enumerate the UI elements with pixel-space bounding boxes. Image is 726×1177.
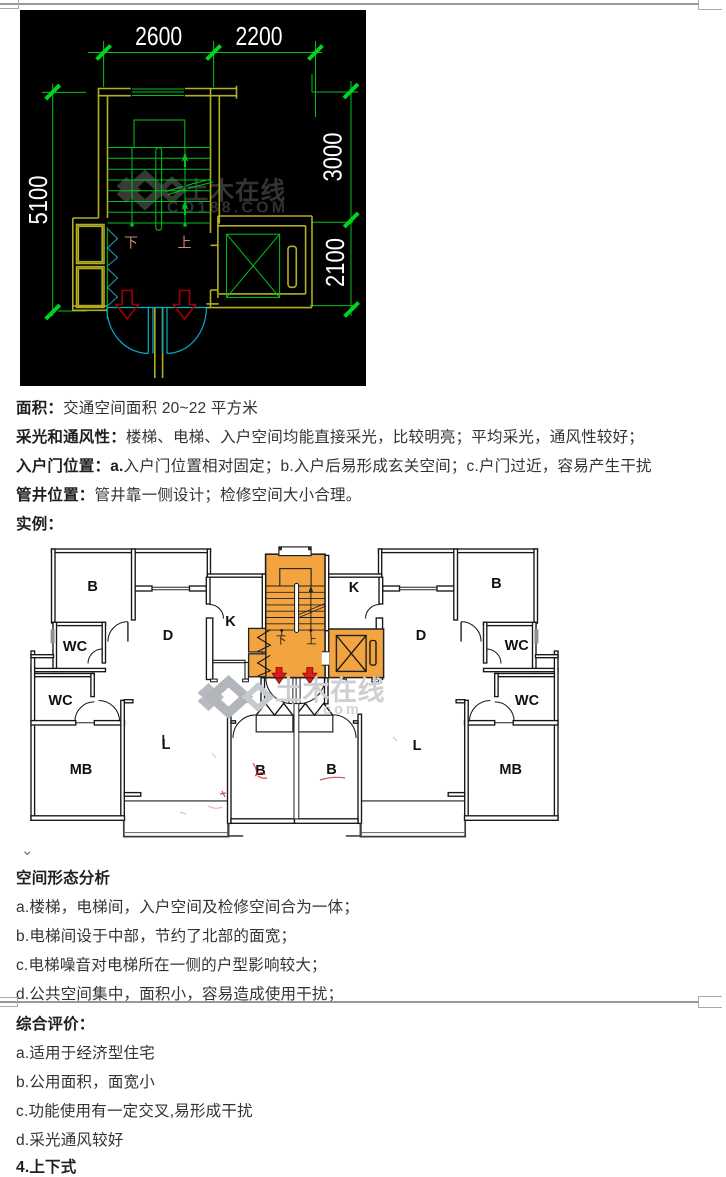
svg-text:WC: WC <box>515 693 540 709</box>
svg-text:3000: 3000 <box>318 133 348 182</box>
svg-text:下: 下 <box>276 635 287 647</box>
svg-text:B: B <box>491 576 501 592</box>
svg-text:WC: WC <box>63 639 88 655</box>
svg-text:L: L <box>162 737 171 753</box>
svg-text:K: K <box>349 580 360 596</box>
svg-text:上: 上 <box>306 635 317 647</box>
svg-text:D: D <box>416 628 426 644</box>
svg-text:L: L <box>413 738 422 754</box>
svg-text:B: B <box>326 762 336 778</box>
svg-text:2100: 2100 <box>320 238 350 287</box>
svg-text:5100: 5100 <box>23 176 53 225</box>
svg-text:K: K <box>225 614 236 630</box>
svg-text:MB: MB <box>70 762 93 778</box>
svg-text:WC: WC <box>505 638 530 654</box>
svg-text:B: B <box>87 579 97 595</box>
svg-text:下: 下 <box>124 235 138 251</box>
svg-text:MB: MB <box>499 762 522 778</box>
svg-text:D: D <box>163 628 173 644</box>
svg-text:2600: 2600 <box>135 21 182 51</box>
svg-text:.com: .com <box>316 702 362 718</box>
svg-text:上: 上 <box>178 235 192 251</box>
svg-text:2200: 2200 <box>236 21 283 51</box>
svg-text:WC: WC <box>48 693 73 709</box>
